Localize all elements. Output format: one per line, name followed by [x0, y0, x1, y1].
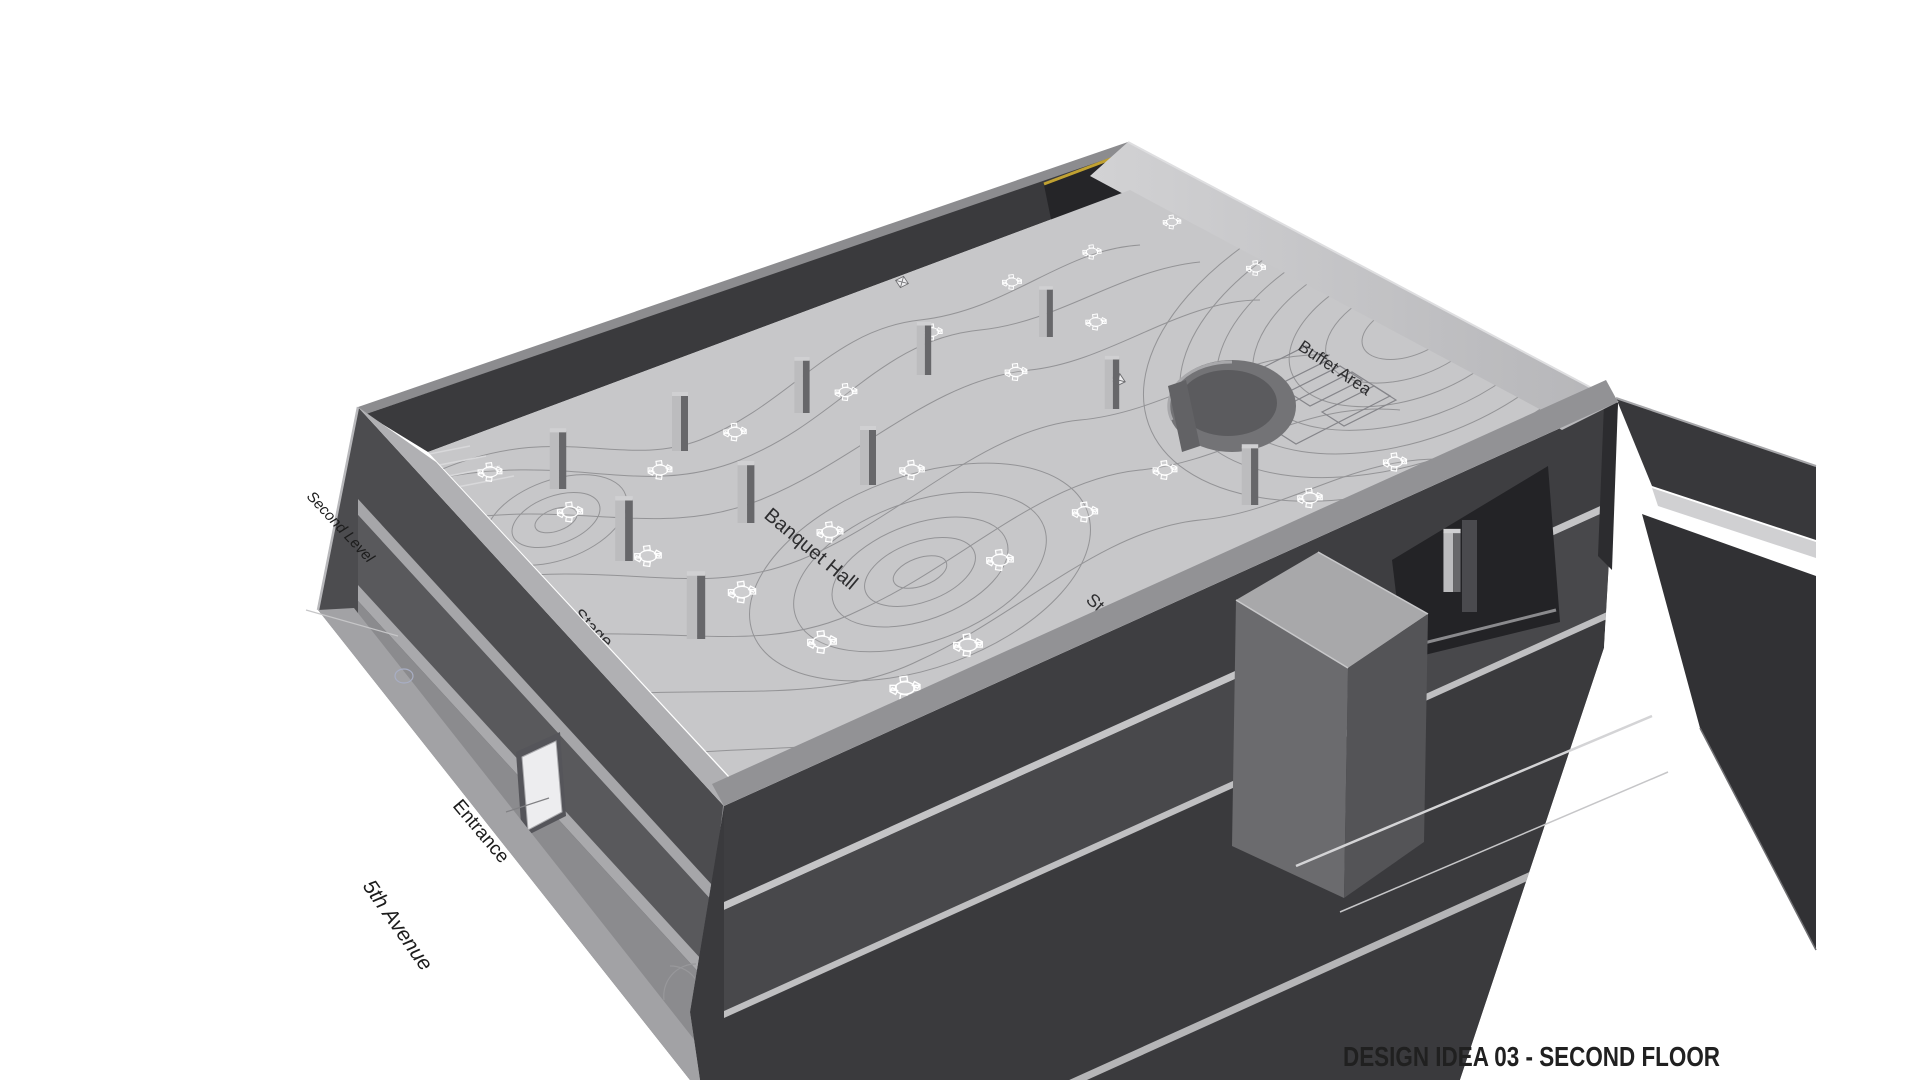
column — [615, 496, 633, 561]
column — [1039, 286, 1053, 337]
architectural-rendering: Banquet Hall Stage Stage Buffet Area Sec… — [0, 0, 1920, 1080]
column — [672, 392, 688, 451]
column — [860, 426, 876, 485]
page-title: DESIGN IDEA 03 - SECOND FLOOR — [1343, 1041, 1720, 1072]
column — [794, 357, 809, 413]
column — [1105, 356, 1119, 409]
column — [687, 571, 705, 639]
right-wing-walls — [1598, 398, 1816, 950]
scene-canvas: Banquet Hall Stage Stage Buffet Area Sec… — [0, 0, 1920, 1080]
street-label: 5th Avenue — [358, 876, 437, 975]
lower-corridor-wall — [1642, 514, 1816, 950]
column — [738, 461, 755, 523]
column — [550, 428, 566, 489]
annex-block — [1232, 552, 1428, 898]
column — [1443, 529, 1460, 592]
column — [917, 322, 931, 375]
arch-structure — [1168, 360, 1296, 452]
column — [1242, 444, 1258, 505]
